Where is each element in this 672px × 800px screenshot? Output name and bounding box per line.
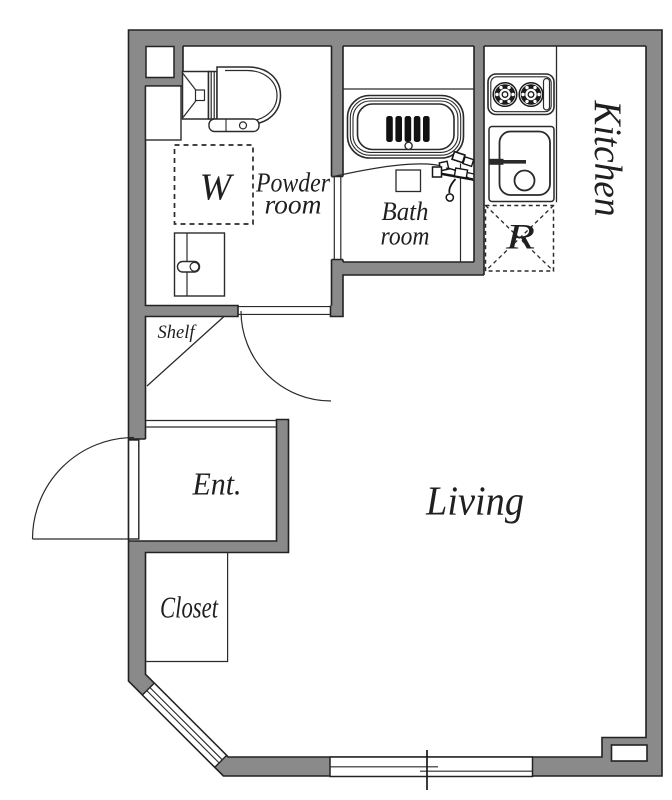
svg-text:Shelf: Shelf <box>158 322 198 343</box>
svg-text:Ent.: Ent. <box>192 466 242 502</box>
svg-text:room: room <box>381 222 430 251</box>
svg-text:W: W <box>200 167 235 209</box>
svg-text:Kitchen: Kitchen <box>586 100 629 217</box>
svg-text:room: room <box>265 190 322 220</box>
svg-text:Closet: Closet <box>160 590 219 625</box>
svg-text:Living: Living <box>425 478 524 524</box>
svg-text:R: R <box>505 217 535 257</box>
